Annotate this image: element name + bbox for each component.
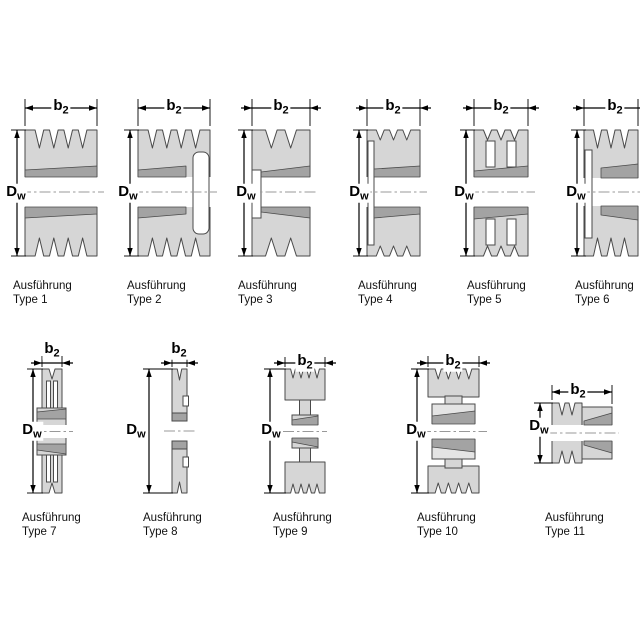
- caption-type-5: AusführungType 5: [467, 279, 526, 307]
- dw-subscript: w: [417, 428, 426, 440]
- b2-subscript: 2: [455, 359, 461, 371]
- b2-label-type-1: b2: [51, 98, 70, 117]
- caption-type-1: AusführungType 1: [13, 279, 72, 307]
- dw-subscript: w: [465, 190, 474, 202]
- dw-label-type-7: Dw: [20, 422, 43, 441]
- b2-subscript: 2: [63, 104, 69, 116]
- caption-type-4: AusführungType 4: [358, 279, 417, 307]
- pulley-type-1: [11, 99, 104, 256]
- b2-label-type-10: b2: [443, 353, 462, 372]
- diagram-canvas: b2 b2 b2 b2 b2 b2 b2 b2 b2 b2 b2 Dw Dw D…: [0, 0, 640, 640]
- b2-subscript: 2: [617, 104, 623, 116]
- dw-label-type-5: Dw: [452, 184, 475, 203]
- b2-label-type-7: b2: [42, 341, 61, 360]
- dw-label-type-8: Dw: [124, 422, 147, 441]
- pulley-type-8: [143, 356, 198, 493]
- b2-subscript: 2: [395, 104, 401, 116]
- dw-label-type-9: Dw: [259, 422, 282, 441]
- dw-subscript: w: [137, 428, 146, 440]
- caption-type-11: AusführungType 11: [545, 511, 604, 539]
- pulley-type-3: [238, 99, 321, 256]
- b2-label-type-8: b2: [169, 341, 188, 360]
- caption-type-2: AusführungType 2: [127, 279, 186, 307]
- caption-type-8: AusführungType 8: [143, 511, 202, 539]
- caption-type-6: AusführungType 6: [575, 279, 634, 307]
- b2-subscript: 2: [307, 359, 313, 371]
- b2-subscript: 2: [580, 388, 586, 400]
- b2-label-type-3: b2: [271, 98, 290, 117]
- dw-label-type-1: Dw: [4, 184, 27, 203]
- dw-subscript: w: [272, 428, 281, 440]
- dw-subscript: w: [33, 428, 42, 440]
- caption-type-10: AusführungType 10: [417, 511, 476, 539]
- pulley-cross-section-drawings: [0, 0, 640, 640]
- dw-label-type-4: Dw: [347, 184, 370, 203]
- b2-label-type-5: b2: [491, 98, 510, 117]
- b2-label-type-9: b2: [295, 353, 314, 372]
- caption-type-3: AusführungType 3: [238, 279, 297, 307]
- dw-subscript: w: [247, 190, 256, 202]
- caption-type-7: AusführungType 7: [22, 511, 81, 539]
- dw-label-type-11: Dw: [527, 418, 550, 437]
- b2-subscript: 2: [283, 104, 289, 116]
- b2-subscript: 2: [54, 347, 60, 359]
- dw-subscript: w: [540, 424, 549, 436]
- dw-subscript: w: [577, 190, 586, 202]
- dw-label-type-6: Dw: [564, 184, 587, 203]
- pulley-type-6: [571, 99, 640, 256]
- dw-label-type-3: Dw: [234, 184, 257, 203]
- b2-label-type-2: b2: [164, 98, 183, 117]
- dw-subscript: w: [17, 190, 26, 202]
- pulley-type-5: [460, 99, 539, 256]
- caption-type-9: AusführungType 9: [273, 511, 332, 539]
- pulley-type-2: [124, 99, 217, 256]
- b2-label-type-11: b2: [568, 382, 587, 401]
- dw-subscript: w: [360, 190, 369, 202]
- dw-label-type-2: Dw: [116, 184, 139, 203]
- b2-subscript: 2: [503, 104, 509, 116]
- b2-subscript: 2: [181, 347, 187, 359]
- b2-subscript: 2: [176, 104, 182, 116]
- dw-subscript: w: [129, 190, 138, 202]
- dw-label-type-10: Dw: [404, 422, 427, 441]
- b2-label-type-6: b2: [605, 98, 624, 117]
- b2-label-type-4: b2: [383, 98, 402, 117]
- pulley-type-4: [353, 99, 431, 256]
